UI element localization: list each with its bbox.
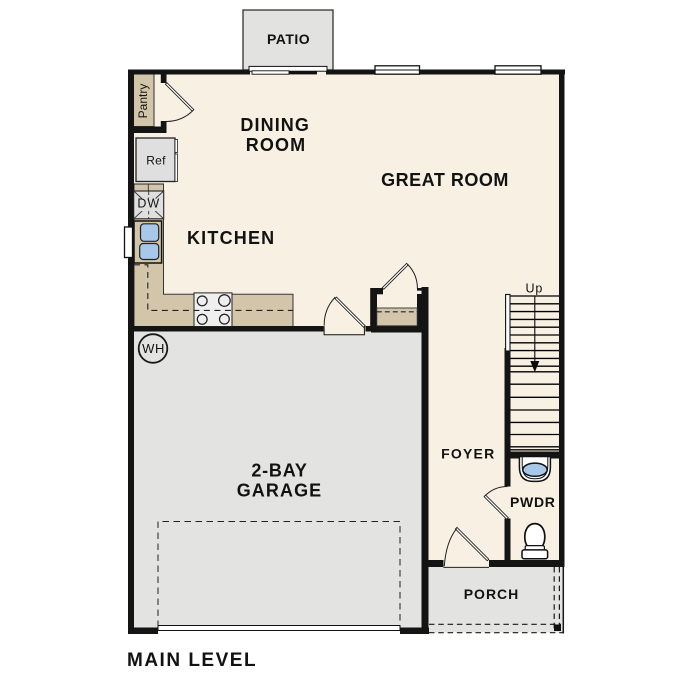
svg-text:GARAGE: GARAGE — [237, 481, 323, 501]
svg-text:FOYER: FOYER — [441, 446, 495, 462]
svg-text:PORCH: PORCH — [464, 586, 520, 602]
svg-text:2-BAY: 2-BAY — [251, 460, 307, 480]
svg-text:ROOM: ROOM — [246, 135, 306, 155]
svg-text:Up: Up — [526, 281, 544, 295]
svg-text:KITCHEN: KITCHEN — [187, 228, 275, 248]
svg-text:Ref: Ref — [146, 154, 166, 168]
svg-text:MAIN LEVEL: MAIN LEVEL — [127, 650, 257, 671]
svg-text:WH: WH — [142, 341, 165, 356]
svg-text:Pantry: Pantry — [136, 84, 150, 119]
svg-text:PWDR: PWDR — [510, 494, 556, 510]
svg-text:DINING: DINING — [240, 115, 310, 135]
svg-text:DW: DW — [137, 197, 160, 211]
svg-text:PATIO: PATIO — [267, 31, 310, 47]
svg-text:GREAT ROOM: GREAT ROOM — [381, 170, 509, 190]
